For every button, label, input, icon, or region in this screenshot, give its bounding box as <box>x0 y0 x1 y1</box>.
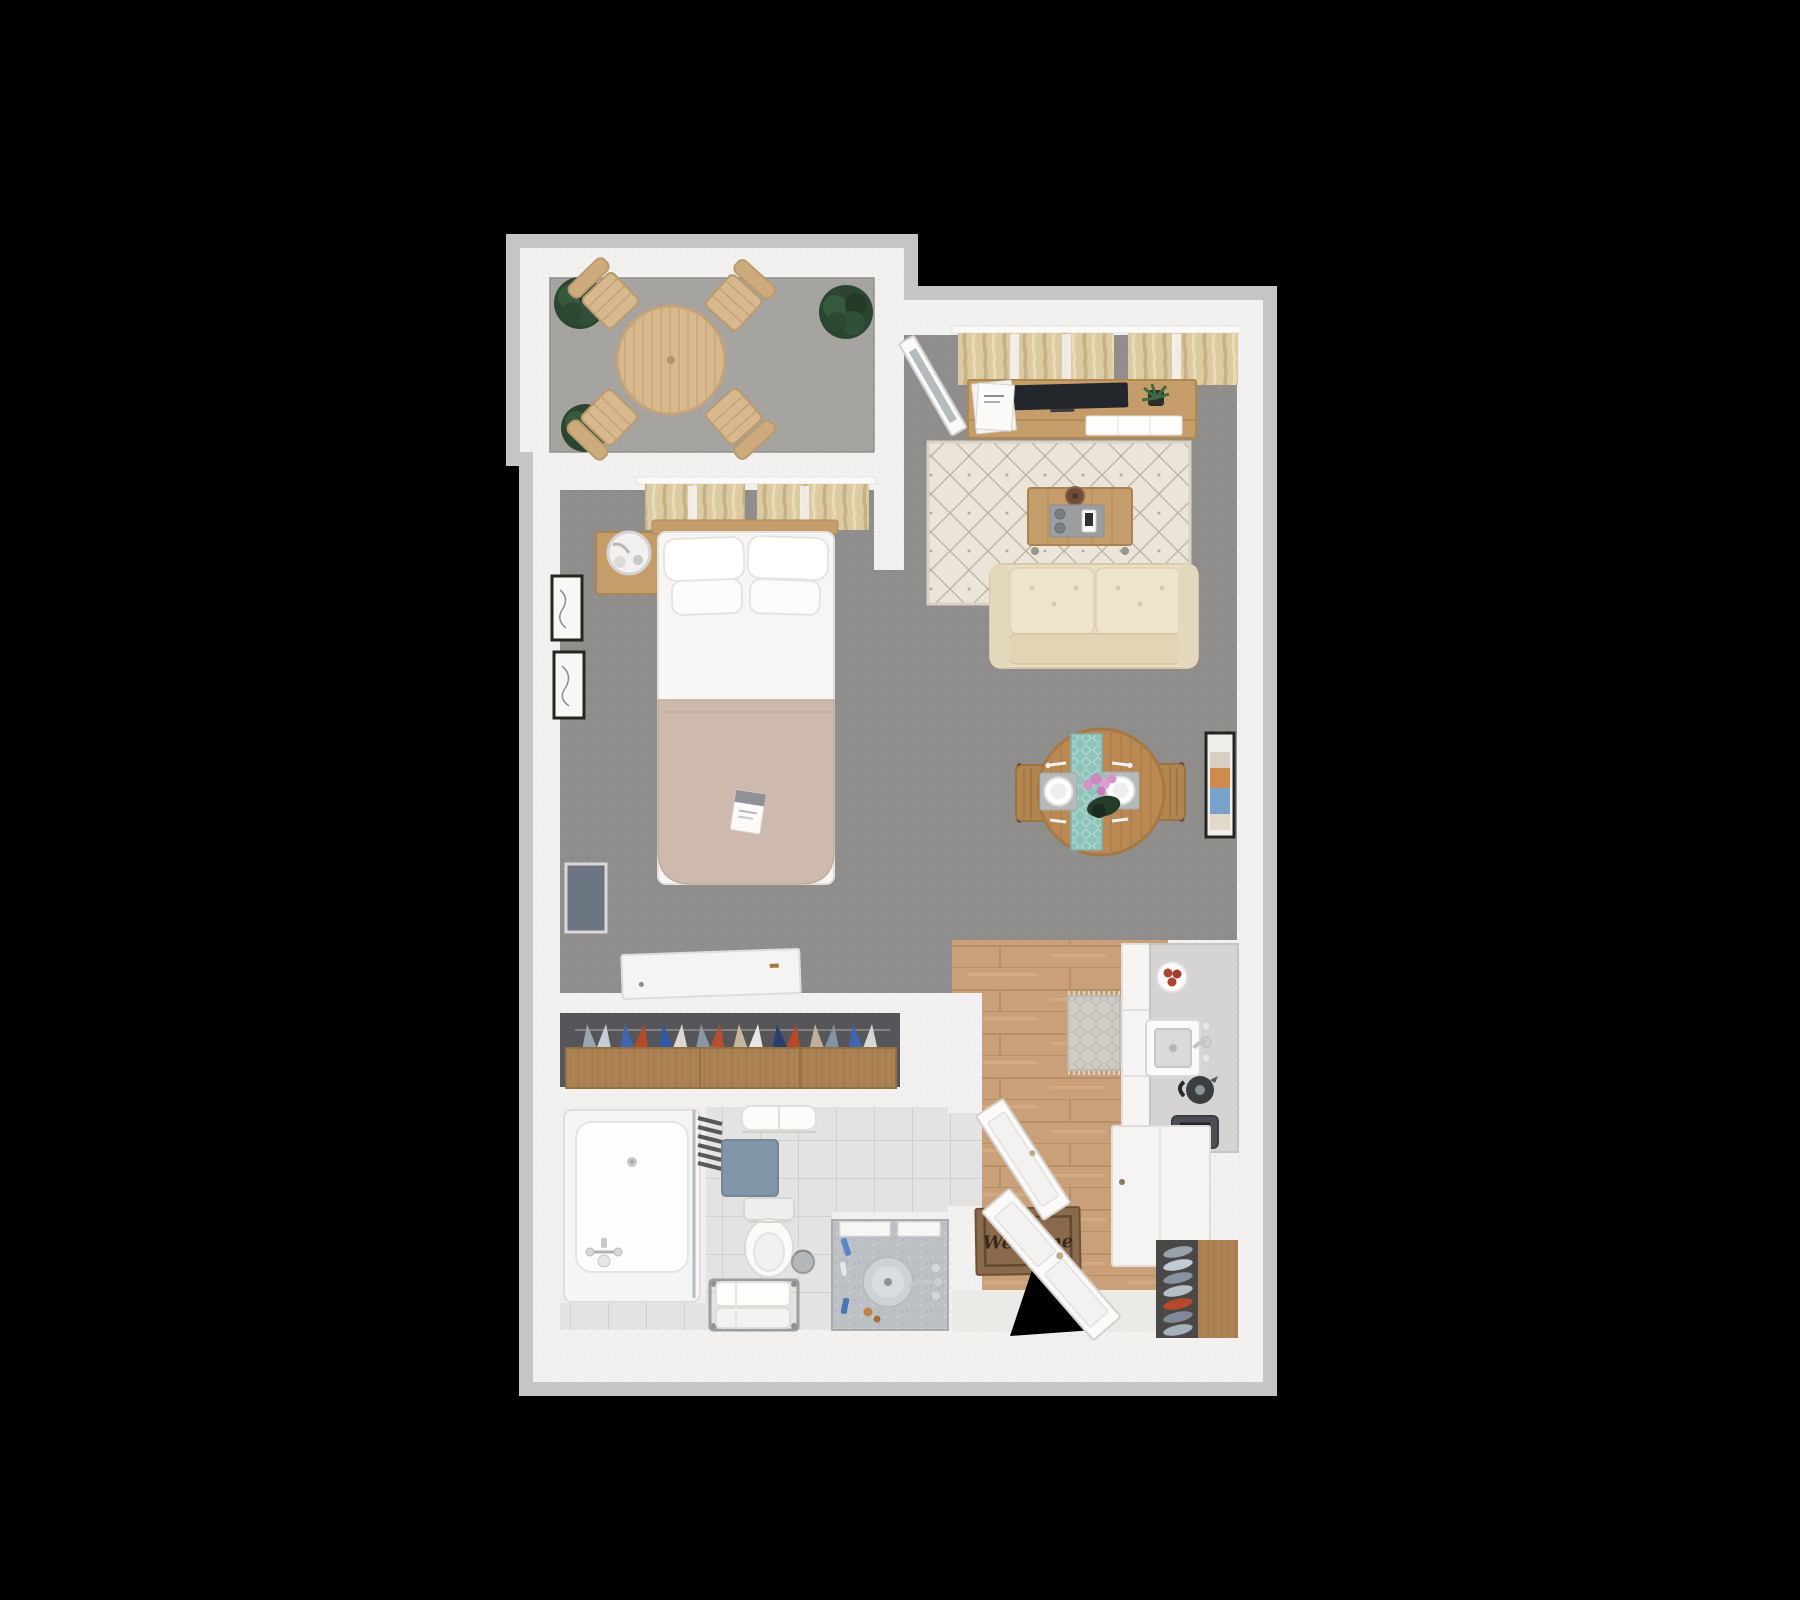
pillow <box>671 579 742 615</box>
wall-desk <box>621 949 800 999</box>
curtain-track <box>636 477 876 484</box>
towel-bench <box>710 1280 798 1330</box>
soap-bottle <box>864 1308 873 1317</box>
wall-frame <box>554 652 584 718</box>
table-lamp <box>608 532 650 574</box>
soap-bottle <box>874 1316 881 1323</box>
vanity-counter <box>832 1212 948 1330</box>
living-curtain <box>1128 333 1238 385</box>
living-curtain <box>958 333 1114 385</box>
sofa-back <box>1006 634 1184 664</box>
pillow <box>749 579 820 615</box>
curtain-track <box>952 326 1242 333</box>
tv-console <box>968 380 1196 438</box>
floorplan-canvas: Welcome <box>0 0 1800 1600</box>
window-frame-gap <box>1062 334 1071 382</box>
shoe-rack <box>1156 1240 1238 1338</box>
potted-plant <box>819 285 873 339</box>
floorplan: Welcome <box>0 0 1800 1600</box>
toilet <box>744 1198 794 1277</box>
bedroom-living-wall-stub <box>874 452 904 570</box>
window-frame-gap <box>1172 334 1181 382</box>
wall-panel <box>566 864 606 932</box>
bath-mat <box>722 1140 778 1196</box>
kitchen-counter <box>1122 944 1238 1152</box>
vanity-tray <box>840 1222 890 1236</box>
console-drawers <box>1086 416 1182 435</box>
coffee-table <box>1028 487 1132 555</box>
entry-wall-upper <box>948 993 982 1113</box>
sofa-armrest <box>990 564 1010 668</box>
wood-floor-mat <box>1068 993 1120 1073</box>
sofa <box>990 564 1198 668</box>
wall-frame <box>552 576 582 640</box>
shoe-rack-panel <box>1198 1240 1238 1338</box>
double-bed <box>652 520 838 884</box>
pillow <box>747 536 828 581</box>
round-dining-table <box>1038 729 1164 855</box>
bathtub <box>564 1110 700 1302</box>
sofa-armrest <box>1178 564 1198 668</box>
trash-bin <box>792 1251 814 1273</box>
vanity-tray <box>898 1222 940 1236</box>
pillow <box>663 537 744 582</box>
tomato-plate <box>1157 962 1187 992</box>
closet-drawer-unit <box>566 1048 896 1088</box>
hall-carpet <box>904 935 952 993</box>
bathroom-doorway-floor <box>948 1113 982 1206</box>
window-frame-gap <box>1010 334 1019 382</box>
magazine-stack <box>971 380 1016 434</box>
magazine <box>730 790 766 834</box>
wall-art <box>1206 733 1234 837</box>
serving-tray <box>1050 505 1104 537</box>
rolled-towels <box>742 1106 816 1132</box>
